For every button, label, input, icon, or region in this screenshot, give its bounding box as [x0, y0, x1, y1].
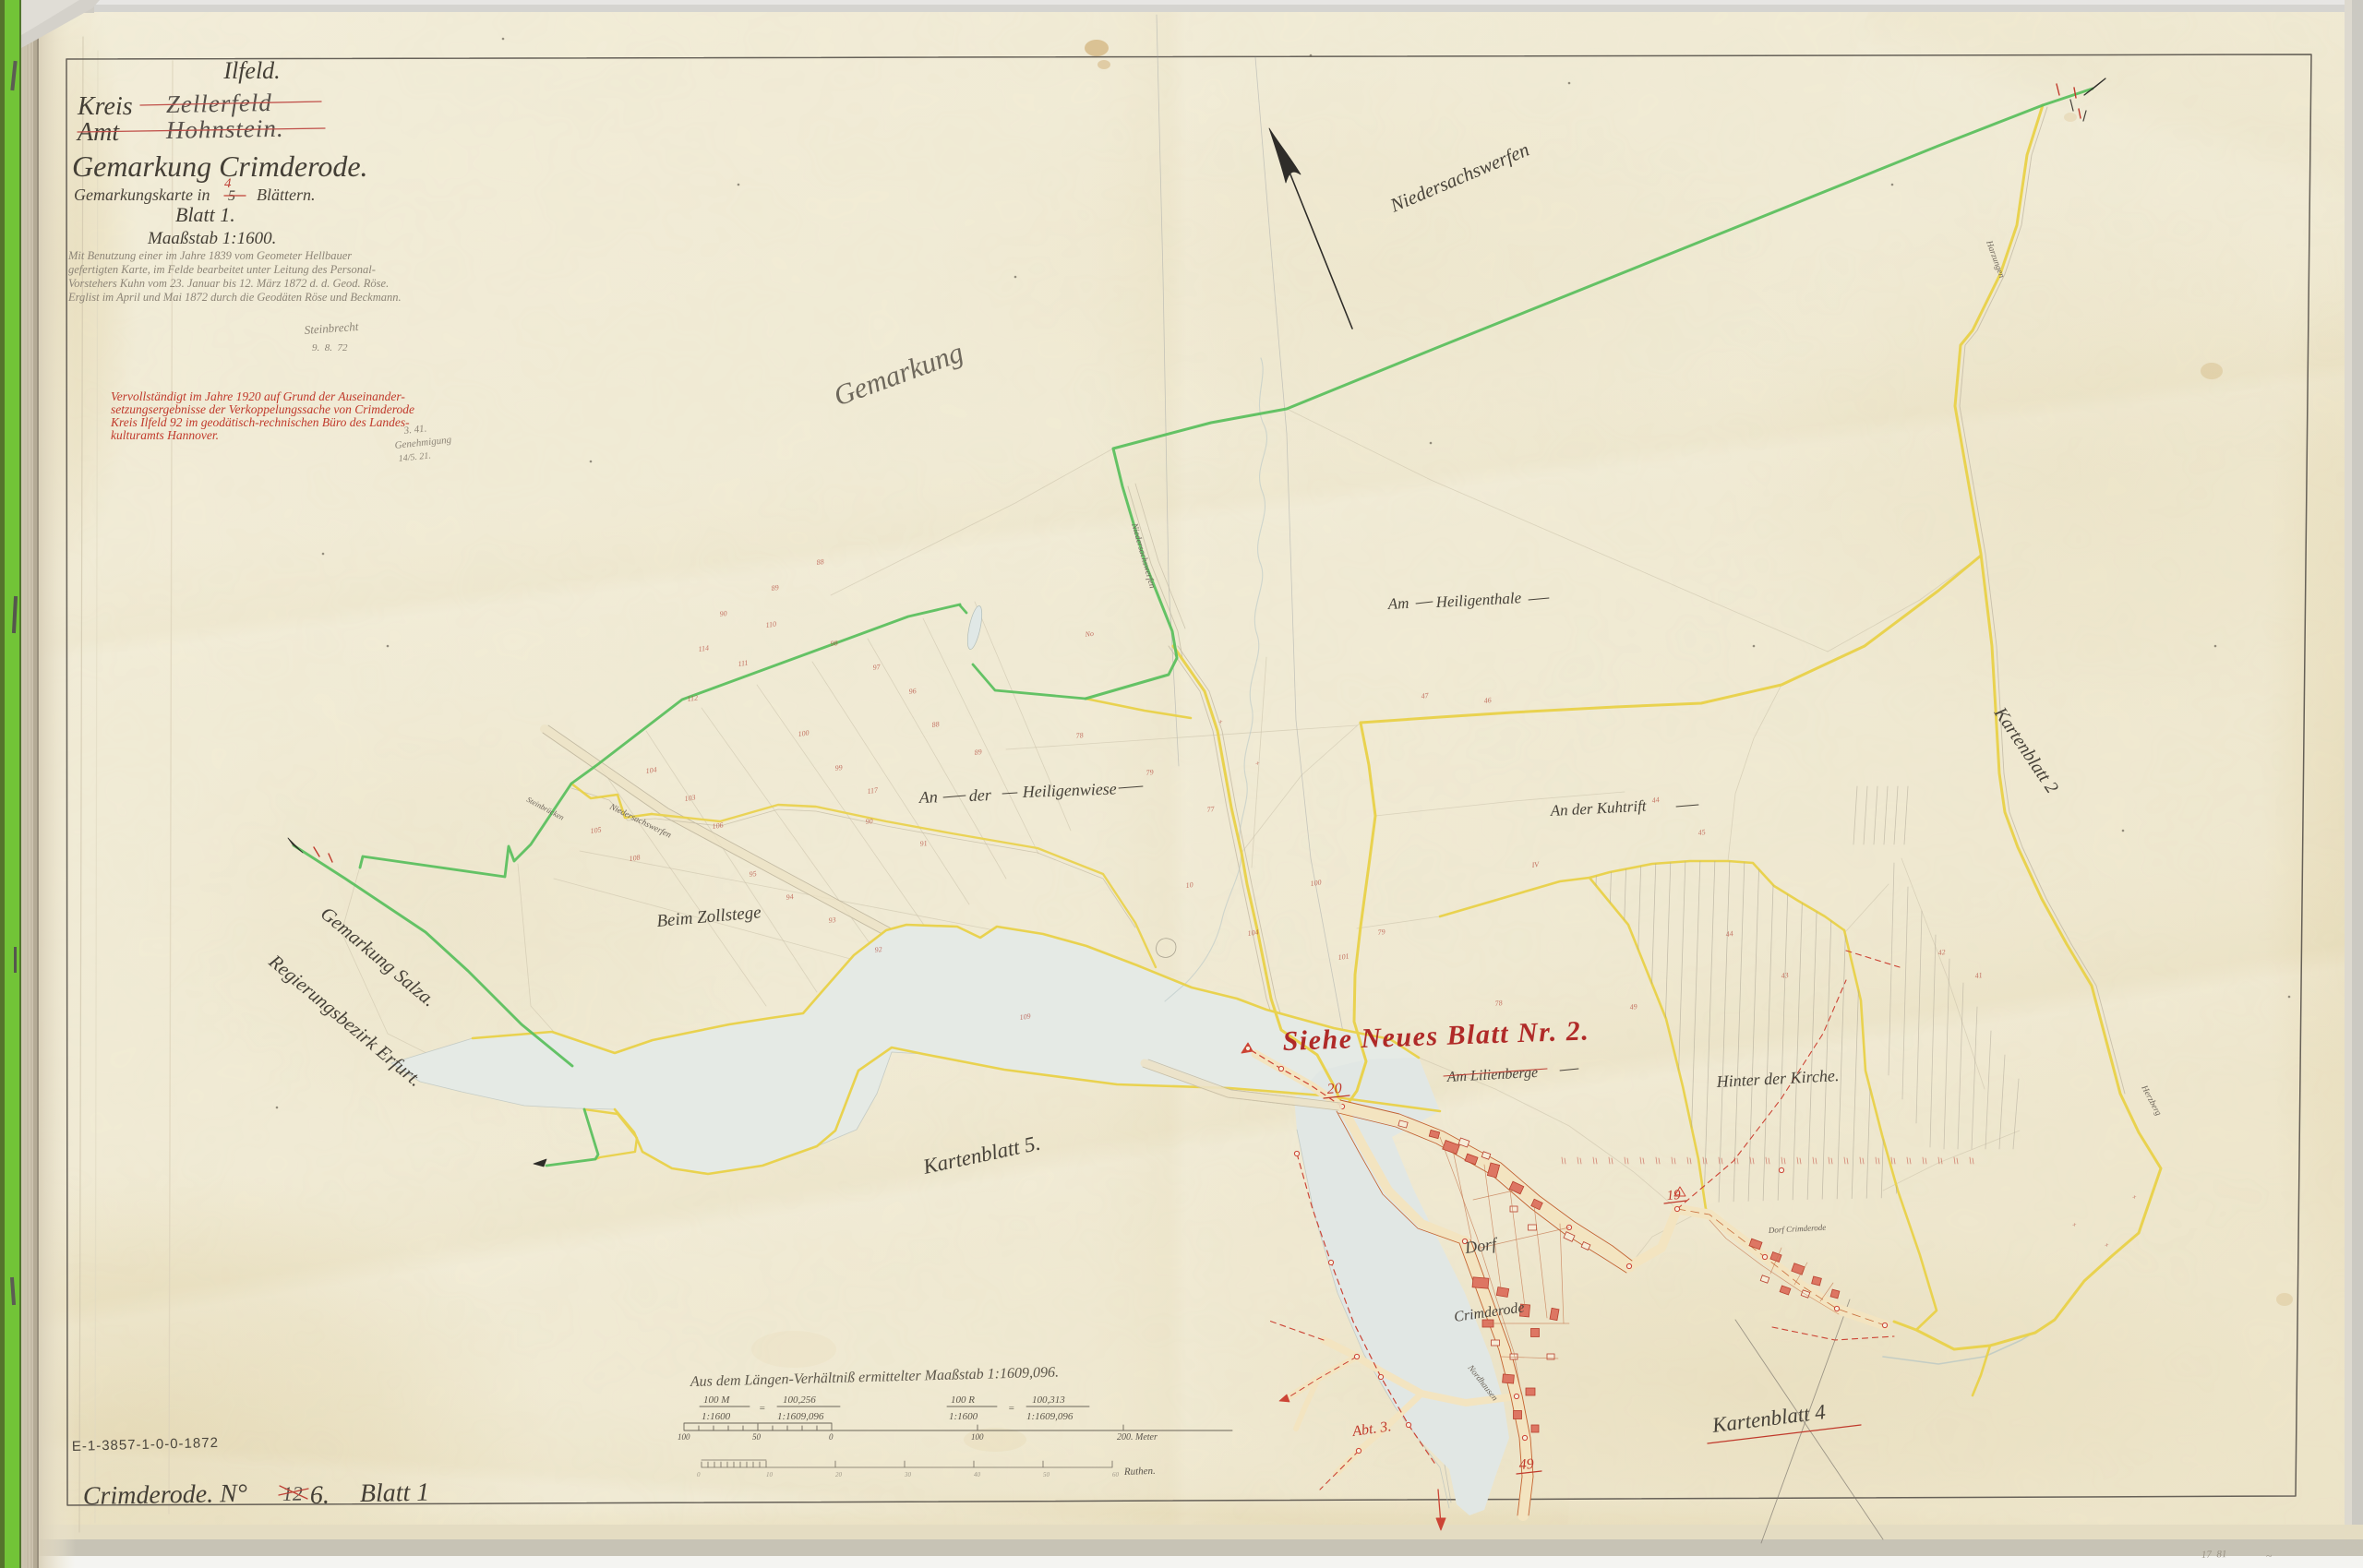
svg-text:100,256: 100,256	[783, 1394, 816, 1406]
svg-text:91: 91	[919, 839, 928, 848]
svg-text:20: 20	[835, 1471, 843, 1478]
svg-text:100 R: 100 R	[951, 1394, 975, 1406]
svg-text:0: 0	[829, 1432, 834, 1442]
svg-text:20: 20	[1326, 1081, 1342, 1097]
svg-text:An: An	[918, 787, 938, 807]
svg-text:104: 104	[645, 765, 657, 775]
svg-text:Maaßstab 1:1600.: Maaßstab 1:1600.	[147, 229, 276, 248]
svg-text:Ilfeld.: Ilfeld.	[222, 57, 280, 84]
svg-text:30: 30	[904, 1471, 912, 1478]
svg-text:99: 99	[834, 763, 843, 772]
svg-text:100: 100	[1310, 878, 1322, 888]
svg-text:10: 10	[1185, 880, 1193, 890]
svg-text:Gemarkung Crimderode.: Gemarkung Crimderode.	[72, 150, 368, 183]
svg-text:49: 49	[1518, 1456, 1534, 1473]
svg-text:78: 78	[1494, 999, 1503, 1008]
svg-text:44: 44	[1651, 796, 1660, 805]
svg-text:Kreis: Kreis	[77, 92, 133, 121]
svg-text:0: 0	[697, 1471, 701, 1478]
svg-text:89: 89	[974, 748, 982, 757]
svg-text:100: 100	[798, 728, 810, 738]
svg-text:200. Meter: 200. Meter	[1117, 1432, 1158, 1442]
svg-text:45: 45	[1697, 828, 1706, 837]
svg-text:1:1609,096: 1:1609,096	[1026, 1411, 1074, 1422]
svg-text:Vervollständigt im Jahre 1920: Vervollständigt im Jahre 1920 auf Grund …	[111, 389, 405, 403]
svg-text:=: =	[759, 1403, 765, 1414]
svg-text:Mit Benutzung einer im Jahre 1: Mit Benutzung einer im Jahre 1839 vom Ge…	[67, 249, 352, 262]
svg-text:79: 79	[1377, 928, 1385, 937]
svg-text:Kreis Ilfeld 92 im geodätisch-: Kreis Ilfeld 92 im geodätisch-rechnische…	[110, 415, 410, 429]
svg-text:Vorstehers Kuhn vom 23. Januar: Vorstehers Kuhn vom 23. Januar bis 12. M…	[68, 277, 389, 290]
svg-text:96: 96	[908, 687, 917, 696]
svg-text:108: 108	[629, 853, 641, 863]
svg-text:109: 109	[1019, 1011, 1031, 1022]
svg-text:100: 100	[971, 1432, 984, 1442]
svg-text:Am: Am	[1386, 594, 1409, 613]
svg-text:110: 110	[765, 619, 777, 628]
svg-text:44: 44	[1725, 929, 1733, 939]
svg-text:6.: 6.	[310, 1481, 330, 1510]
svg-text:~: ~	[2266, 1550, 2273, 1562]
svg-text:Erglist im April und Mai 1872: Erglist im April und Mai 1872 durch die …	[67, 291, 402, 304]
svg-text:46: 46	[1483, 696, 1492, 705]
svg-text:Crimderode. N°: Crimderode. N°	[83, 1479, 248, 1511]
svg-text:93: 93	[828, 916, 836, 925]
svg-text:kulturamts Hannover.: kulturamts Hannover.	[111, 428, 219, 442]
svg-text:Blättern.: Blättern.	[257, 186, 316, 204]
svg-text:79: 79	[1146, 768, 1154, 777]
svg-text:106: 106	[712, 820, 724, 831]
svg-text:setzungsergebnisse der Verkopp: setzungsergebnisse der Verkoppelungssach…	[111, 402, 414, 416]
svg-text:114: 114	[698, 643, 710, 652]
svg-text:89: 89	[771, 583, 779, 592]
svg-text:50: 50	[752, 1432, 762, 1442]
svg-text:98: 98	[830, 639, 838, 648]
svg-text:50: 50	[1043, 1471, 1050, 1478]
svg-text:111: 111	[738, 659, 749, 668]
svg-text:112: 112	[687, 693, 699, 702]
svg-text:Heiligenwiese: Heiligenwiese	[1021, 779, 1117, 801]
svg-text:Blatt 1.: Blatt 1.	[175, 203, 235, 226]
svg-text:der: der	[968, 785, 992, 805]
svg-text:100,313: 100,313	[1032, 1394, 1065, 1406]
svg-text:78: 78	[1075, 731, 1084, 740]
svg-text:No: No	[1084, 629, 1094, 639]
svg-text:gefertigten Karte, im Felde be: gefertigten Karte, im Felde bearbeitet u…	[68, 263, 376, 276]
svg-text:90: 90	[865, 817, 873, 826]
svg-text:=: =	[1008, 1403, 1014, 1414]
svg-text:9. 8. 72: 9. 8. 72	[312, 342, 348, 353]
svg-text:Gemarkungskarte in: Gemarkungskarte in	[74, 186, 210, 204]
svg-text:Ruthen.: Ruthen.	[1123, 1466, 1156, 1478]
svg-text:90: 90	[719, 609, 727, 618]
svg-text:100 M: 100 M	[703, 1394, 730, 1406]
svg-text:94: 94	[786, 892, 794, 902]
svg-text:101: 101	[1337, 952, 1349, 962]
svg-text:Blatt 1: Blatt 1	[360, 1478, 430, 1508]
svg-text:49: 49	[1629, 1002, 1637, 1011]
svg-text:41: 41	[1974, 971, 1983, 980]
svg-text:1:1600: 1:1600	[949, 1411, 978, 1422]
svg-text:100: 100	[678, 1432, 690, 1442]
svg-text:43: 43	[1781, 971, 1789, 980]
svg-text:105: 105	[590, 825, 602, 835]
svg-text:88: 88	[931, 720, 940, 729]
svg-text:104: 104	[1247, 928, 1259, 938]
svg-text:40: 40	[974, 1471, 981, 1478]
svg-text:10: 10	[766, 1471, 774, 1478]
svg-text:17 81: 17 81	[2201, 1549, 2227, 1561]
svg-text:92: 92	[874, 945, 882, 954]
svg-text:95: 95	[749, 869, 757, 879]
svg-text:1:1600: 1:1600	[702, 1411, 731, 1422]
svg-text:103: 103	[684, 793, 696, 803]
svg-text:1:1609,096: 1:1609,096	[777, 1411, 824, 1422]
svg-text:60: 60	[1112, 1471, 1120, 1478]
svg-text:42: 42	[1937, 948, 1946, 957]
svg-text:88: 88	[816, 557, 824, 567]
